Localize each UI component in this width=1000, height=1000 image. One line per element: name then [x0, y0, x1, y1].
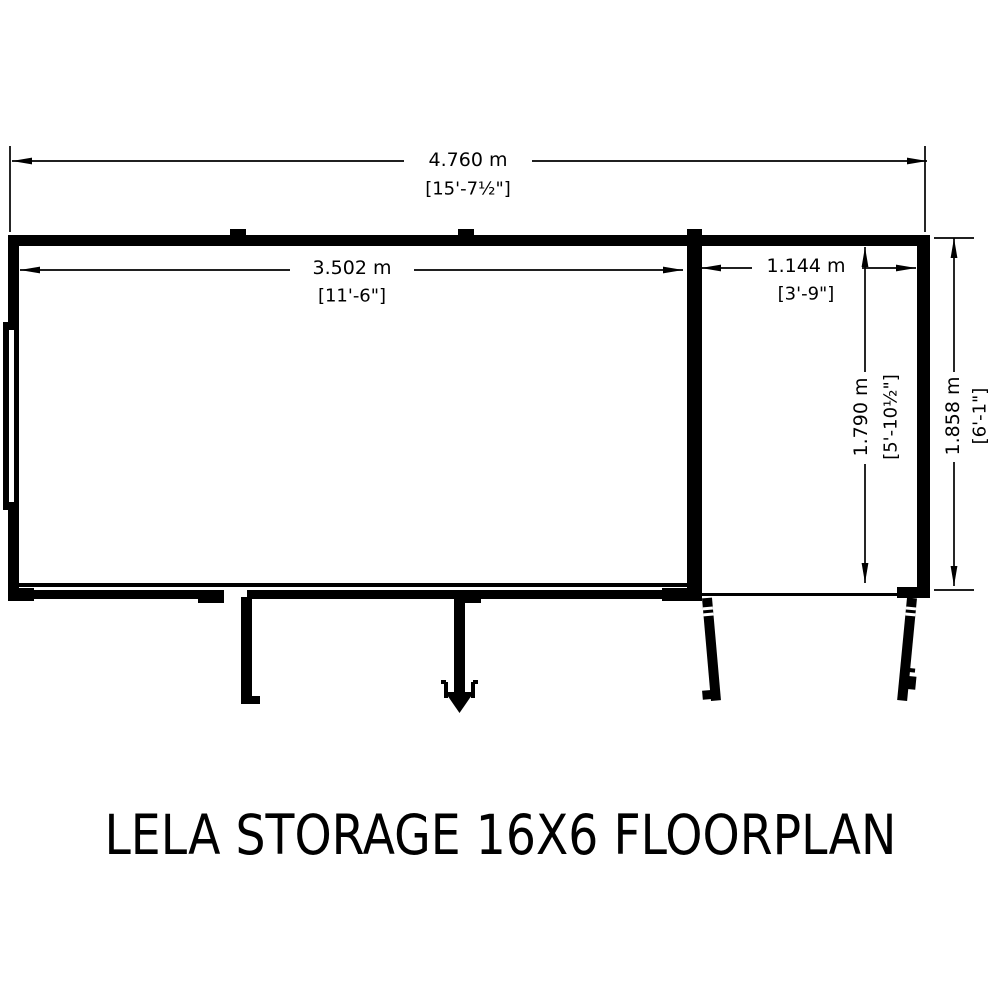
dim-overall-width-metric: 4.760 m: [429, 149, 508, 171]
door-leaf-3-foot: [702, 690, 712, 700]
door-leaf-1: [241, 597, 260, 704]
door-post-1: [198, 590, 224, 603]
door-swing-arrow-icon: [445, 692, 474, 713]
door-sill-2: [247, 590, 458, 599]
door-leaf-2-hook-left-tip: [441, 680, 446, 684]
divider-wall: [687, 229, 702, 601]
arrow-left-icon: [701, 265, 721, 272]
arrow-right-icon: [896, 265, 916, 272]
top-wall-stud-marker-2: [458, 229, 474, 237]
side-room-threshold: [702, 587, 930, 598]
floorplan-title-text: LELA STORAGE 16X6 FLOORPLAN: [104, 803, 896, 867]
arrow-right-icon: [907, 158, 927, 165]
dim-overall-depth-imperial: [6'-1"]: [970, 388, 991, 445]
door-leaf-2-hook-left: [444, 682, 448, 698]
arrow-up-icon: [951, 238, 958, 258]
door-leaf-4-handle: [907, 676, 916, 690]
arrow-left-icon: [12, 158, 32, 165]
arrow-down-icon: [862, 563, 869, 583]
dim-side-width-metric: 1.144 m: [767, 255, 846, 277]
door-leaf-2: [441, 597, 478, 713]
door-leaf-4-handle-tick: [909, 668, 915, 673]
door-leaf-1-foot: [250, 696, 260, 704]
dim-main-width-imperial: [11'-6"]: [318, 286, 386, 307]
arrow-up-icon: [862, 247, 869, 267]
door-leaf-2-hook-right-tip: [473, 680, 478, 684]
right-wall: [917, 235, 930, 588]
arrow-right-icon: [663, 267, 683, 274]
dim-overall-depth-metric: 1.858 m: [942, 377, 964, 456]
left-wall-window: [3, 322, 19, 510]
track-line: [19, 583, 687, 587]
dim-main-width-metric: 3.502 m: [313, 257, 392, 279]
door-leaf-2-hook-right: [471, 682, 475, 698]
window-glazing-line: [9, 330, 14, 502]
dim-side-width-imperial: [3'-9"]: [778, 284, 835, 305]
front-door-track: [8, 583, 689, 603]
door-leaf-3: [694, 598, 721, 702]
door-leaf-2-panel: [454, 597, 465, 694]
dim-internal-depth-imperial: [5'-10½"]: [881, 374, 902, 460]
threshold-line: [702, 593, 902, 596]
threshold-block-right: [897, 587, 930, 598]
top-wall-stud-marker-1: [230, 229, 246, 237]
arrow-down-icon: [951, 566, 958, 586]
arrow-left-icon: [20, 267, 40, 274]
door-leaf-1-panel: [241, 597, 252, 704]
floorplan-page: 4.760 m [15'-7½"] 3.502 m [11'-6"] 1.144…: [0, 0, 1000, 1000]
dim-internal-depth-metric: 1.790 m: [850, 378, 872, 457]
dim-overall-width-imperial: [15'-7½"]: [425, 179, 511, 200]
floorplan-title: LELA STORAGE 16X6 FLOORPLAN: [0, 803, 1000, 867]
door-leaf-4: [897, 598, 924, 702]
track-block-right: [662, 588, 689, 601]
door-sill-3: [476, 590, 664, 599]
door-sill-1: [30, 590, 202, 599]
